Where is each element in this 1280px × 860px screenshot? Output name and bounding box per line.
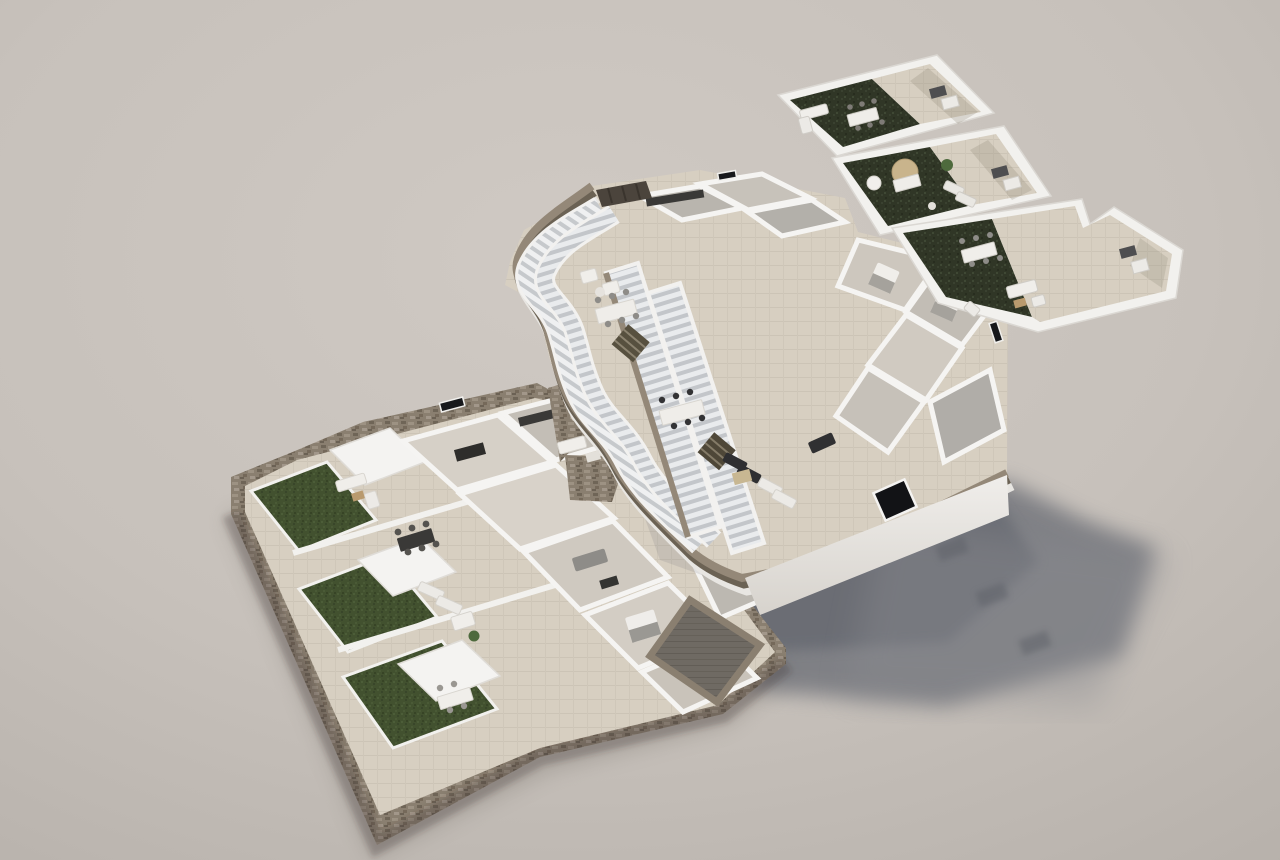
potted-plant (469, 631, 480, 642)
render-stage (0, 0, 1280, 860)
exploded-floorplan-render (0, 0, 1280, 860)
terrace-2-plant (941, 159, 953, 171)
parasol-white-folded (867, 176, 881, 190)
